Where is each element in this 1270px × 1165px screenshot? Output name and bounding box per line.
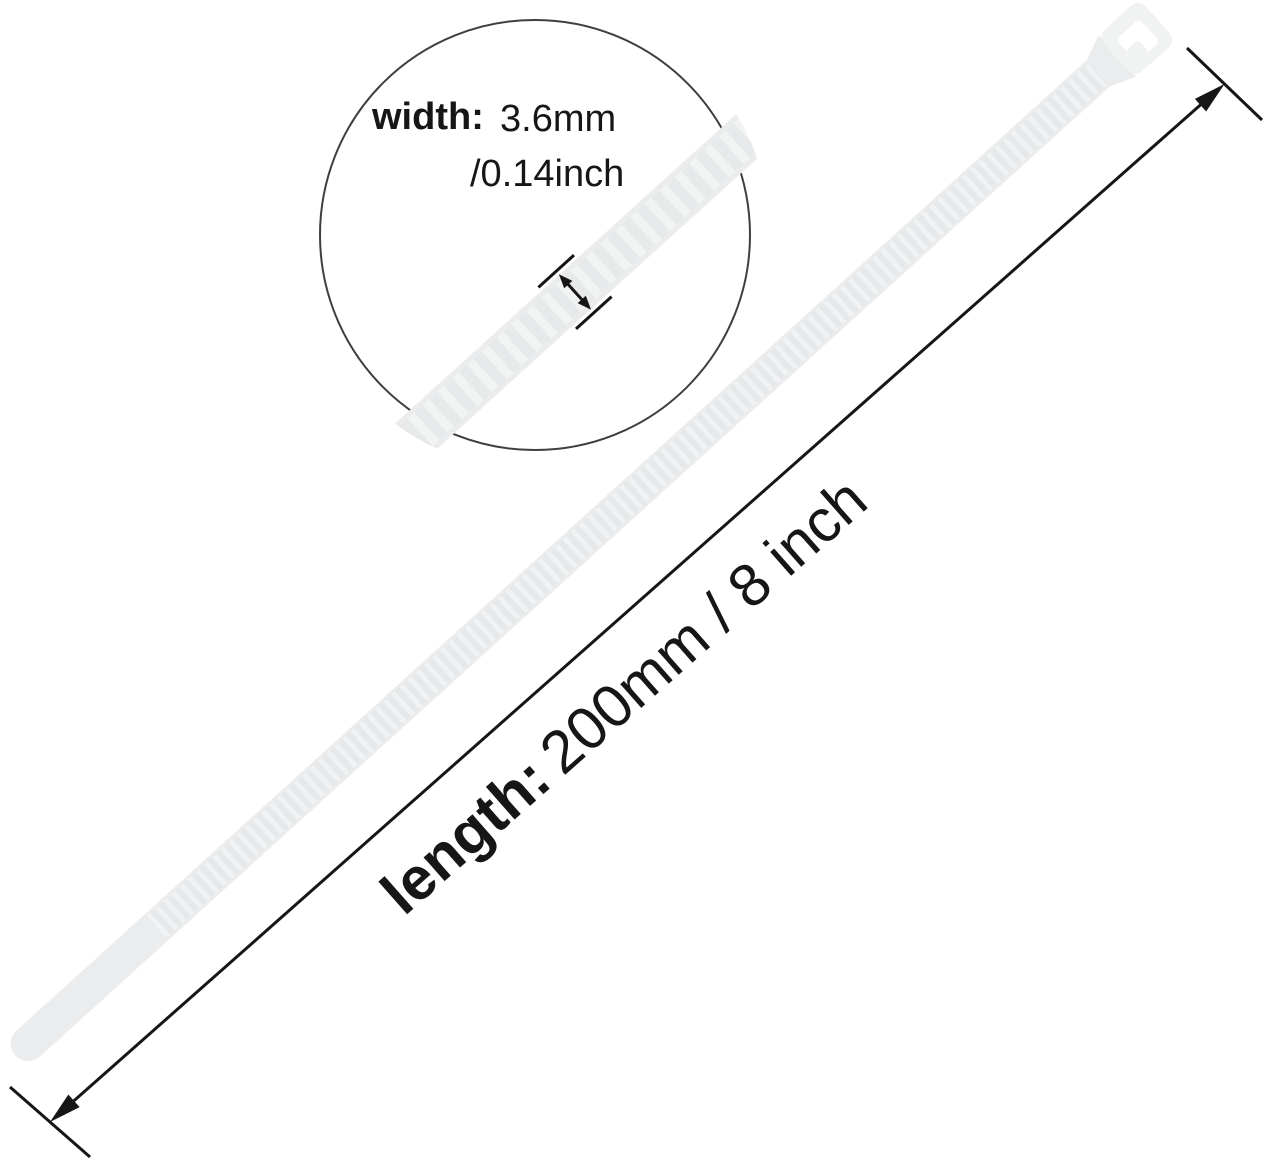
magnifier-circle	[320, 20, 750, 450]
width-label: width:	[371, 96, 484, 138]
product-diagram: width: 3.6mm /0.14inch length: 200mm / 8…	[0, 0, 1270, 1165]
width-value-inch: /0.14inch	[470, 153, 624, 195]
width-value-mm: 3.6mm	[500, 98, 616, 140]
